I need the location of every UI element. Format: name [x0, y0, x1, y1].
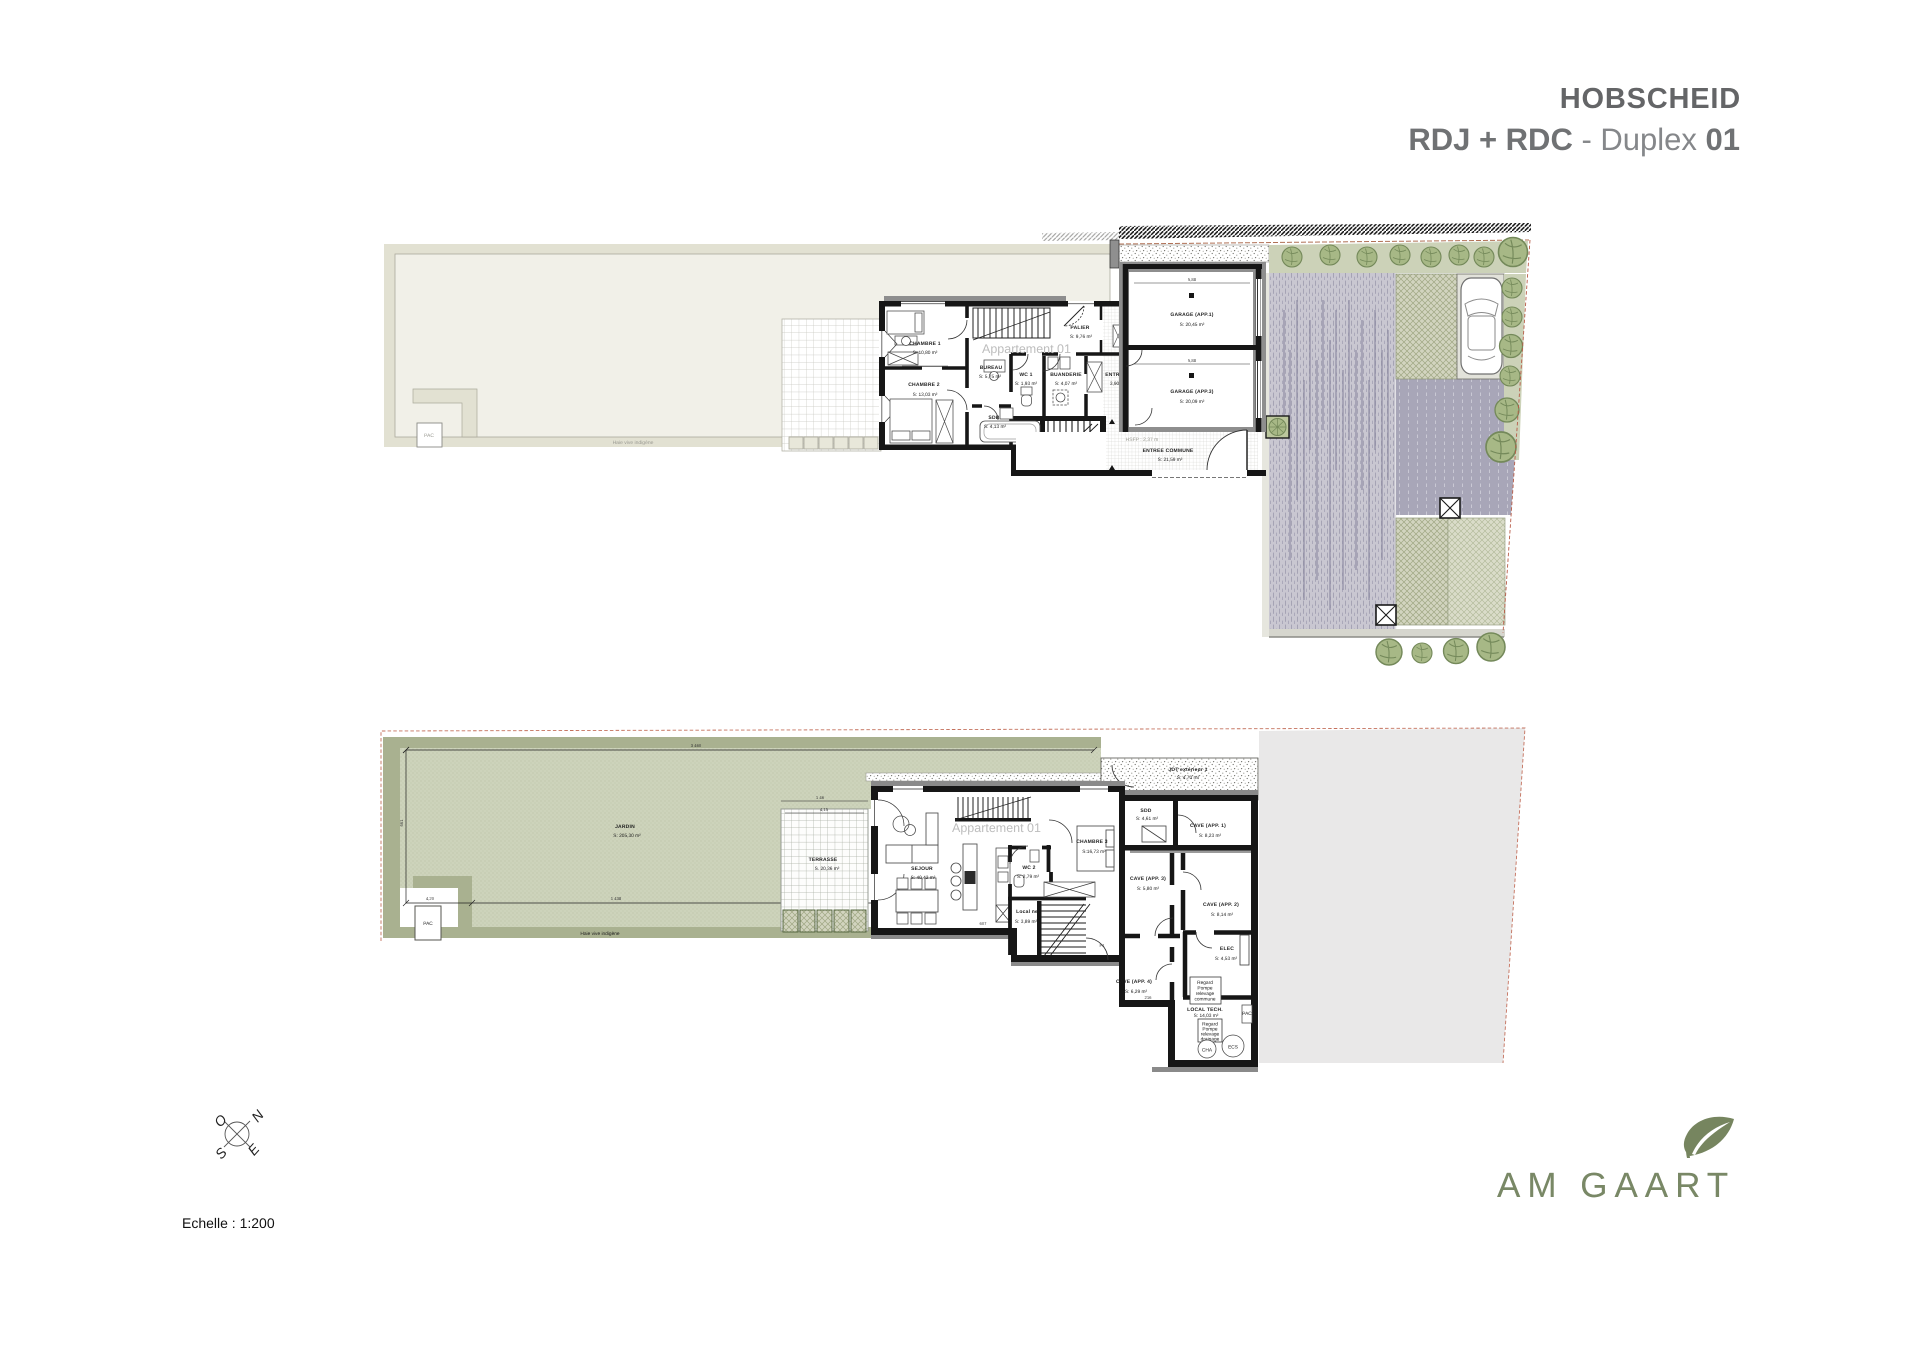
svg-text:S: 10,80 m²: S: 10,80 m²	[913, 350, 938, 356]
svg-text:S. 20,36 m²: S. 20,36 m²	[815, 866, 840, 872]
svg-text:RDJ + RDC - Duplex 01: RDJ + RDC - Duplex 01	[1408, 122, 1740, 157]
svg-text:S: 40,42 m²: S: 40,42 m²	[911, 875, 936, 881]
svg-text:Local net: Local net	[1016, 909, 1040, 915]
svg-text:CAVE (APP. 2): CAVE (APP. 2)	[1203, 902, 1239, 908]
svg-text:S: 9,76 m²: S: 9,76 m²	[1070, 334, 1093, 340]
svg-text:S: 4,70 m²: S: 4,70 m²	[1177, 775, 1200, 781]
svg-text:LOCAL TECH.: LOCAL TECH.	[1187, 1007, 1223, 1013]
svg-text:CAVE (APP. 4): CAVE (APP. 4)	[1116, 979, 1152, 985]
svg-text:Appartement 01: Appartement 01	[982, 342, 1071, 356]
svg-text:PALIER: PALIER	[1070, 325, 1089, 331]
svg-text:HOBSCHEID: HOBSCHEID	[1560, 83, 1741, 115]
svg-text:4,20: 4,20	[426, 896, 435, 901]
svg-text:CAVE (APP. 3): CAVE (APP. 3)	[1130, 876, 1166, 882]
svg-text:S: 5,75 m²: S: 5,75 m²	[979, 374, 1002, 380]
svg-text:Appartement 01: Appartement 01	[952, 821, 1041, 835]
svg-text:ECS: ECS	[1228, 1045, 1238, 1051]
svg-text:S: 20,45 m²: S: 20,45 m²	[1180, 322, 1205, 328]
svg-text:S: S	[212, 1144, 231, 1162]
svg-text:S: 3,89 m²: S: 3,89 m²	[1015, 919, 1038, 925]
svg-text:commune: commune	[1194, 998, 1215, 1003]
svg-text:AM GAART: AM GAART	[1497, 1166, 1735, 1205]
svg-text:S: 1,93 m²: S: 1,93 m²	[1015, 381, 1038, 387]
svg-text:WC 1: WC 1	[1019, 372, 1032, 378]
svg-text:Haie vive indigène: Haie vive indigène	[580, 931, 620, 937]
svg-text:PAC: PAC	[423, 921, 433, 927]
svg-text:WC 2: WC 2	[1022, 865, 1035, 871]
svg-text:CHA: CHA	[1202, 1048, 1213, 1054]
svg-text:ENTREE COMMUNE: ENTREE COMMUNE	[1143, 448, 1194, 454]
svg-text:PAC: PAC	[1242, 1011, 1252, 1017]
svg-text:216: 216	[1145, 995, 1153, 1000]
svg-text:5,88: 5,88	[1188, 277, 1197, 282]
svg-text:S: 8,14 m²: S: 8,14 m²	[1211, 912, 1234, 918]
svg-text:HSFP : 2,37 m: HSFP : 2,37 m	[1126, 437, 1159, 443]
svg-text:S: 4,61 m²: S: 4,61 m²	[1136, 816, 1159, 822]
svg-text:TERRASSE: TERRASSE	[809, 857, 838, 863]
svg-text:S: 21,59 m²: S: 21,59 m²	[1158, 457, 1183, 463]
svg-text:S: 5,80 m²: S: 5,80 m²	[1137, 886, 1160, 892]
svg-text:N: N	[248, 1106, 267, 1125]
svg-text:3 460: 3 460	[691, 743, 702, 748]
svg-text:4,15: 4,15	[820, 807, 829, 812]
svg-text:Echelle : 1:200: Echelle : 1:200	[182, 1215, 275, 1231]
svg-text:S: 8,23 m²: S: 8,23 m²	[1199, 833, 1222, 839]
svg-text:Haie vive indigène: Haie vive indigène	[613, 440, 654, 446]
svg-text:S: 14,03 m²: S: 14,03 m²	[1194, 1013, 1219, 1019]
svg-text:Pompe: Pompe	[1197, 986, 1213, 992]
svg-text:GARAGE (APP.1): GARAGE (APP.1)	[1170, 312, 1213, 318]
svg-text:P1: P1	[1099, 943, 1105, 948]
svg-text:E: E	[244, 1140, 263, 1158]
svg-text:JDT extérieur 1: JDT extérieur 1	[1168, 767, 1207, 773]
svg-text:1 46: 1 46	[816, 795, 825, 800]
svg-text:661: 661	[399, 819, 404, 827]
svg-text:SDB: SDB	[988, 415, 999, 421]
svg-text:S: 4,07 m²: S: 4,07 m²	[1055, 381, 1078, 387]
svg-text:ELEC: ELEC	[1220, 946, 1234, 952]
svg-text:5,88: 5,88	[1188, 358, 1197, 363]
svg-text:SEJOUR: SEJOUR	[911, 866, 933, 872]
svg-text:S: 4,53 m²: S: 4,53 m²	[1215, 956, 1238, 962]
svg-text:S: 20,09 m²: S: 20,09 m²	[1180, 399, 1205, 405]
svg-text:BUANDERIE: BUANDERIE	[1050, 372, 1082, 378]
svg-text:607: 607	[980, 921, 988, 926]
svg-text:S: 4,13 m²: S: 4,13 m²	[984, 424, 1007, 430]
svg-text:S: 2,79 m²: S: 2,79 m²	[1017, 874, 1040, 880]
svg-text:CHAMBRE 1: CHAMBRE 1	[909, 341, 941, 347]
svg-text:CHAMBRE 2: CHAMBRE 2	[908, 382, 940, 388]
svg-text:PAC: PAC	[424, 433, 434, 439]
svg-text:GARAGE (APP.3): GARAGE (APP.3)	[1170, 389, 1213, 395]
svg-text:SDD: SDD	[1140, 808, 1151, 814]
svg-text:1 438: 1 438	[611, 896, 622, 901]
svg-text:CHAMBRE 3: CHAMBRE 3	[1076, 839, 1108, 845]
svg-text:JARDIN: JARDIN	[615, 824, 635, 830]
svg-text:BUREAU: BUREAU	[980, 365, 1003, 371]
svg-text:S:16,73 m²: S:16,73 m²	[1082, 849, 1106, 855]
svg-text:Regard: Regard	[1197, 980, 1213, 986]
svg-text:S: 205,30 m²: S: 205,30 m²	[613, 833, 641, 839]
svg-text:relevage: relevage	[1196, 991, 1215, 997]
svg-text:S: 13,03 m²: S: 13,03 m²	[913, 392, 938, 398]
